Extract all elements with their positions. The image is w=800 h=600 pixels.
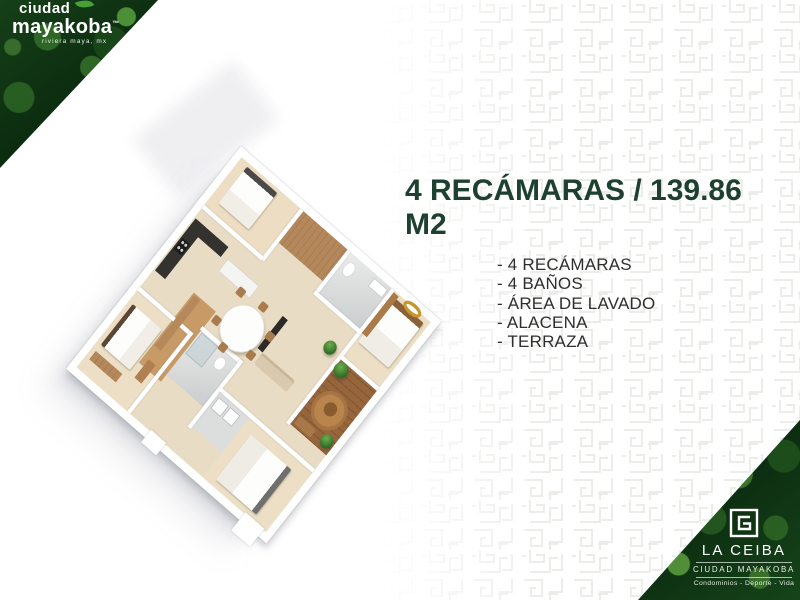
feature-item: - 4 BAÑOS [497,274,757,293]
la-ceiba-subbrand: CIUDAD MAYAKOBA [688,565,800,574]
brand-subtitle: riviera maya, mx [42,39,120,46]
page-title: 4 RECÁMARAS / 139.86 M2 [405,174,785,242]
brand-line1: ciudad [19,1,120,16]
feature-list: - 4 RECÁMARAS - 4 BAÑOS - ÁREA DE LAVADO… [497,255,757,351]
la-ceiba-tagline: Condominios - Deporte - Vida [688,580,800,587]
divider [696,577,792,578]
plant [321,338,340,358]
brand-line2: mayakoba™ [12,17,120,37]
feature-item: - ÁREA DE LAVADO [497,294,757,313]
la-ceiba-emblem-icon [729,508,759,538]
slide: ciudad mayakoba™ riviera maya, mx LA CEI… [0,0,800,600]
feature-item: - TERRAZA [497,332,757,351]
divider [696,562,792,563]
feature-item: - 4 RECÁMARAS [497,255,757,274]
ciudad-mayakoba-logo: ciudad mayakoba™ riviera maya, mx [12,0,120,46]
la-ceiba-name: LA CEIBA [688,542,800,559]
sofa [254,352,296,392]
trademark: ™ [112,20,119,27]
feature-item: - ALACENA [497,313,757,332]
la-ceiba-logo: LA CEIBA CIUDAD MAYAKOBA Condominios - D… [688,508,800,587]
